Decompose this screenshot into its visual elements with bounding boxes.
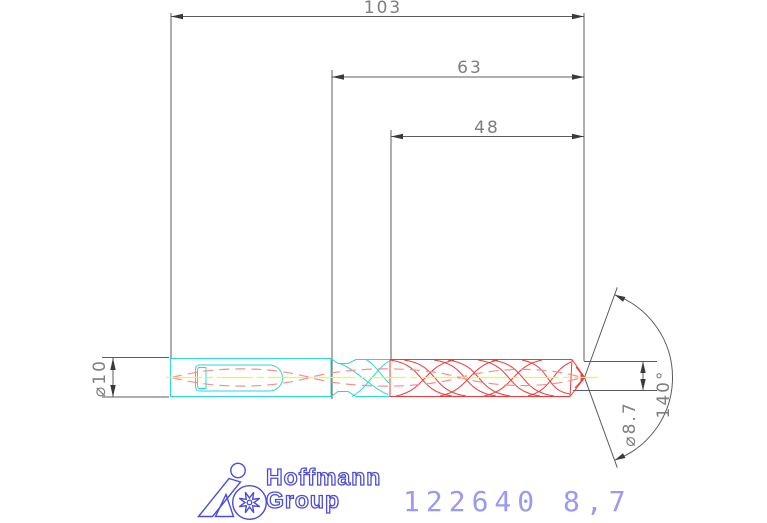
dim-overall-length-label: 103 [364, 0, 402, 18]
dim-shank-diameter-label: ⌀10 [90, 359, 110, 397]
logo-text-line2: Group [266, 489, 340, 512]
part-number-label: 122640 8,7 [403, 485, 632, 518]
logo-gear-circle [233, 486, 267, 520]
extension-lines [102, 13, 657, 399]
logo-head-circle [231, 463, 245, 477]
technical-drawing-canvas: 103 63 48 ⌀10 ⌀8.7 140° Hoffmann Group 1… [0, 0, 767, 523]
hoffmann-logo-icon [199, 463, 267, 519]
drill-linework [0, 0, 767, 523]
dim-cutting-length-label: 48 [474, 118, 500, 138]
dim-flute-length-label: 63 [457, 58, 483, 78]
logo-star-center [247, 500, 252, 505]
logo-leg-triangle [216, 495, 234, 517]
logo-starburst [239, 492, 259, 512]
logo-text-line1: Hoffmann [266, 466, 381, 489]
dim-point-angle-label: 140° [654, 370, 674, 419]
dim-cutting-diameter-label: ⌀8.7 [620, 401, 640, 446]
dimension-lines [113, 17, 673, 468]
